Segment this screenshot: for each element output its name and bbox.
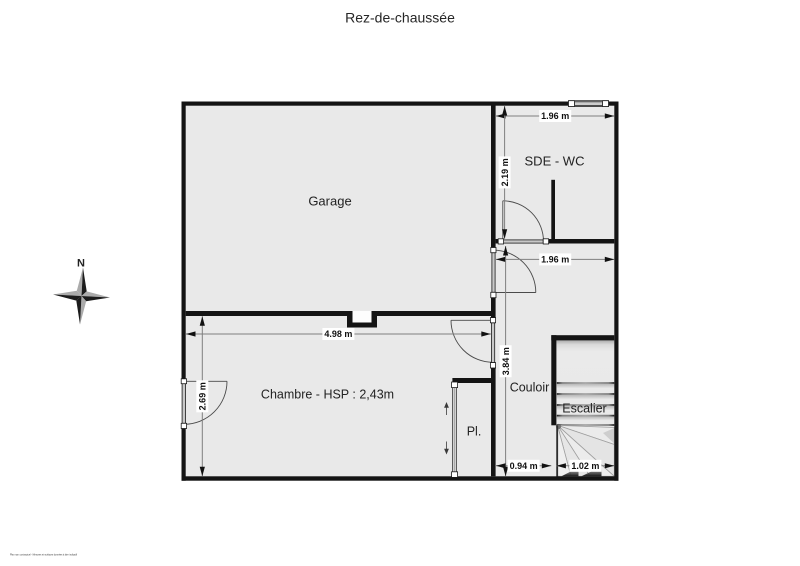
svg-text:Escalier: Escalier [562,401,606,415]
svg-text:Couloir: Couloir [510,380,550,394]
svg-text:1.96 m: 1.96 m [541,255,569,265]
svg-text:1.96 m: 1.96 m [541,111,569,121]
svg-text:Garage: Garage [308,194,351,209]
svg-text:3.84 m: 3.84 m [501,347,511,375]
svg-text:2.69 m: 2.69 m [198,382,208,410]
svg-text:Rez-de-chaussée: Rez-de-chaussée [345,10,455,26]
svg-text:4.98 m: 4.98 m [324,329,352,339]
svg-text:Chambre - HSP : 2,43m: Chambre - HSP : 2,43m [261,388,394,402]
svg-text:Pl.: Pl. [467,424,482,438]
svg-text:0.94 m: 0.94 m [510,461,538,471]
svg-text:N: N [77,258,85,270]
svg-text:SDE - WC: SDE - WC [525,154,585,169]
svg-text:Plan non contractuel - Mesures: Plan non contractuel - Mesures et surfac… [10,553,77,557]
svg-text:1.02 m: 1.02 m [571,461,599,471]
svg-text:2.19 m: 2.19 m [500,158,510,186]
